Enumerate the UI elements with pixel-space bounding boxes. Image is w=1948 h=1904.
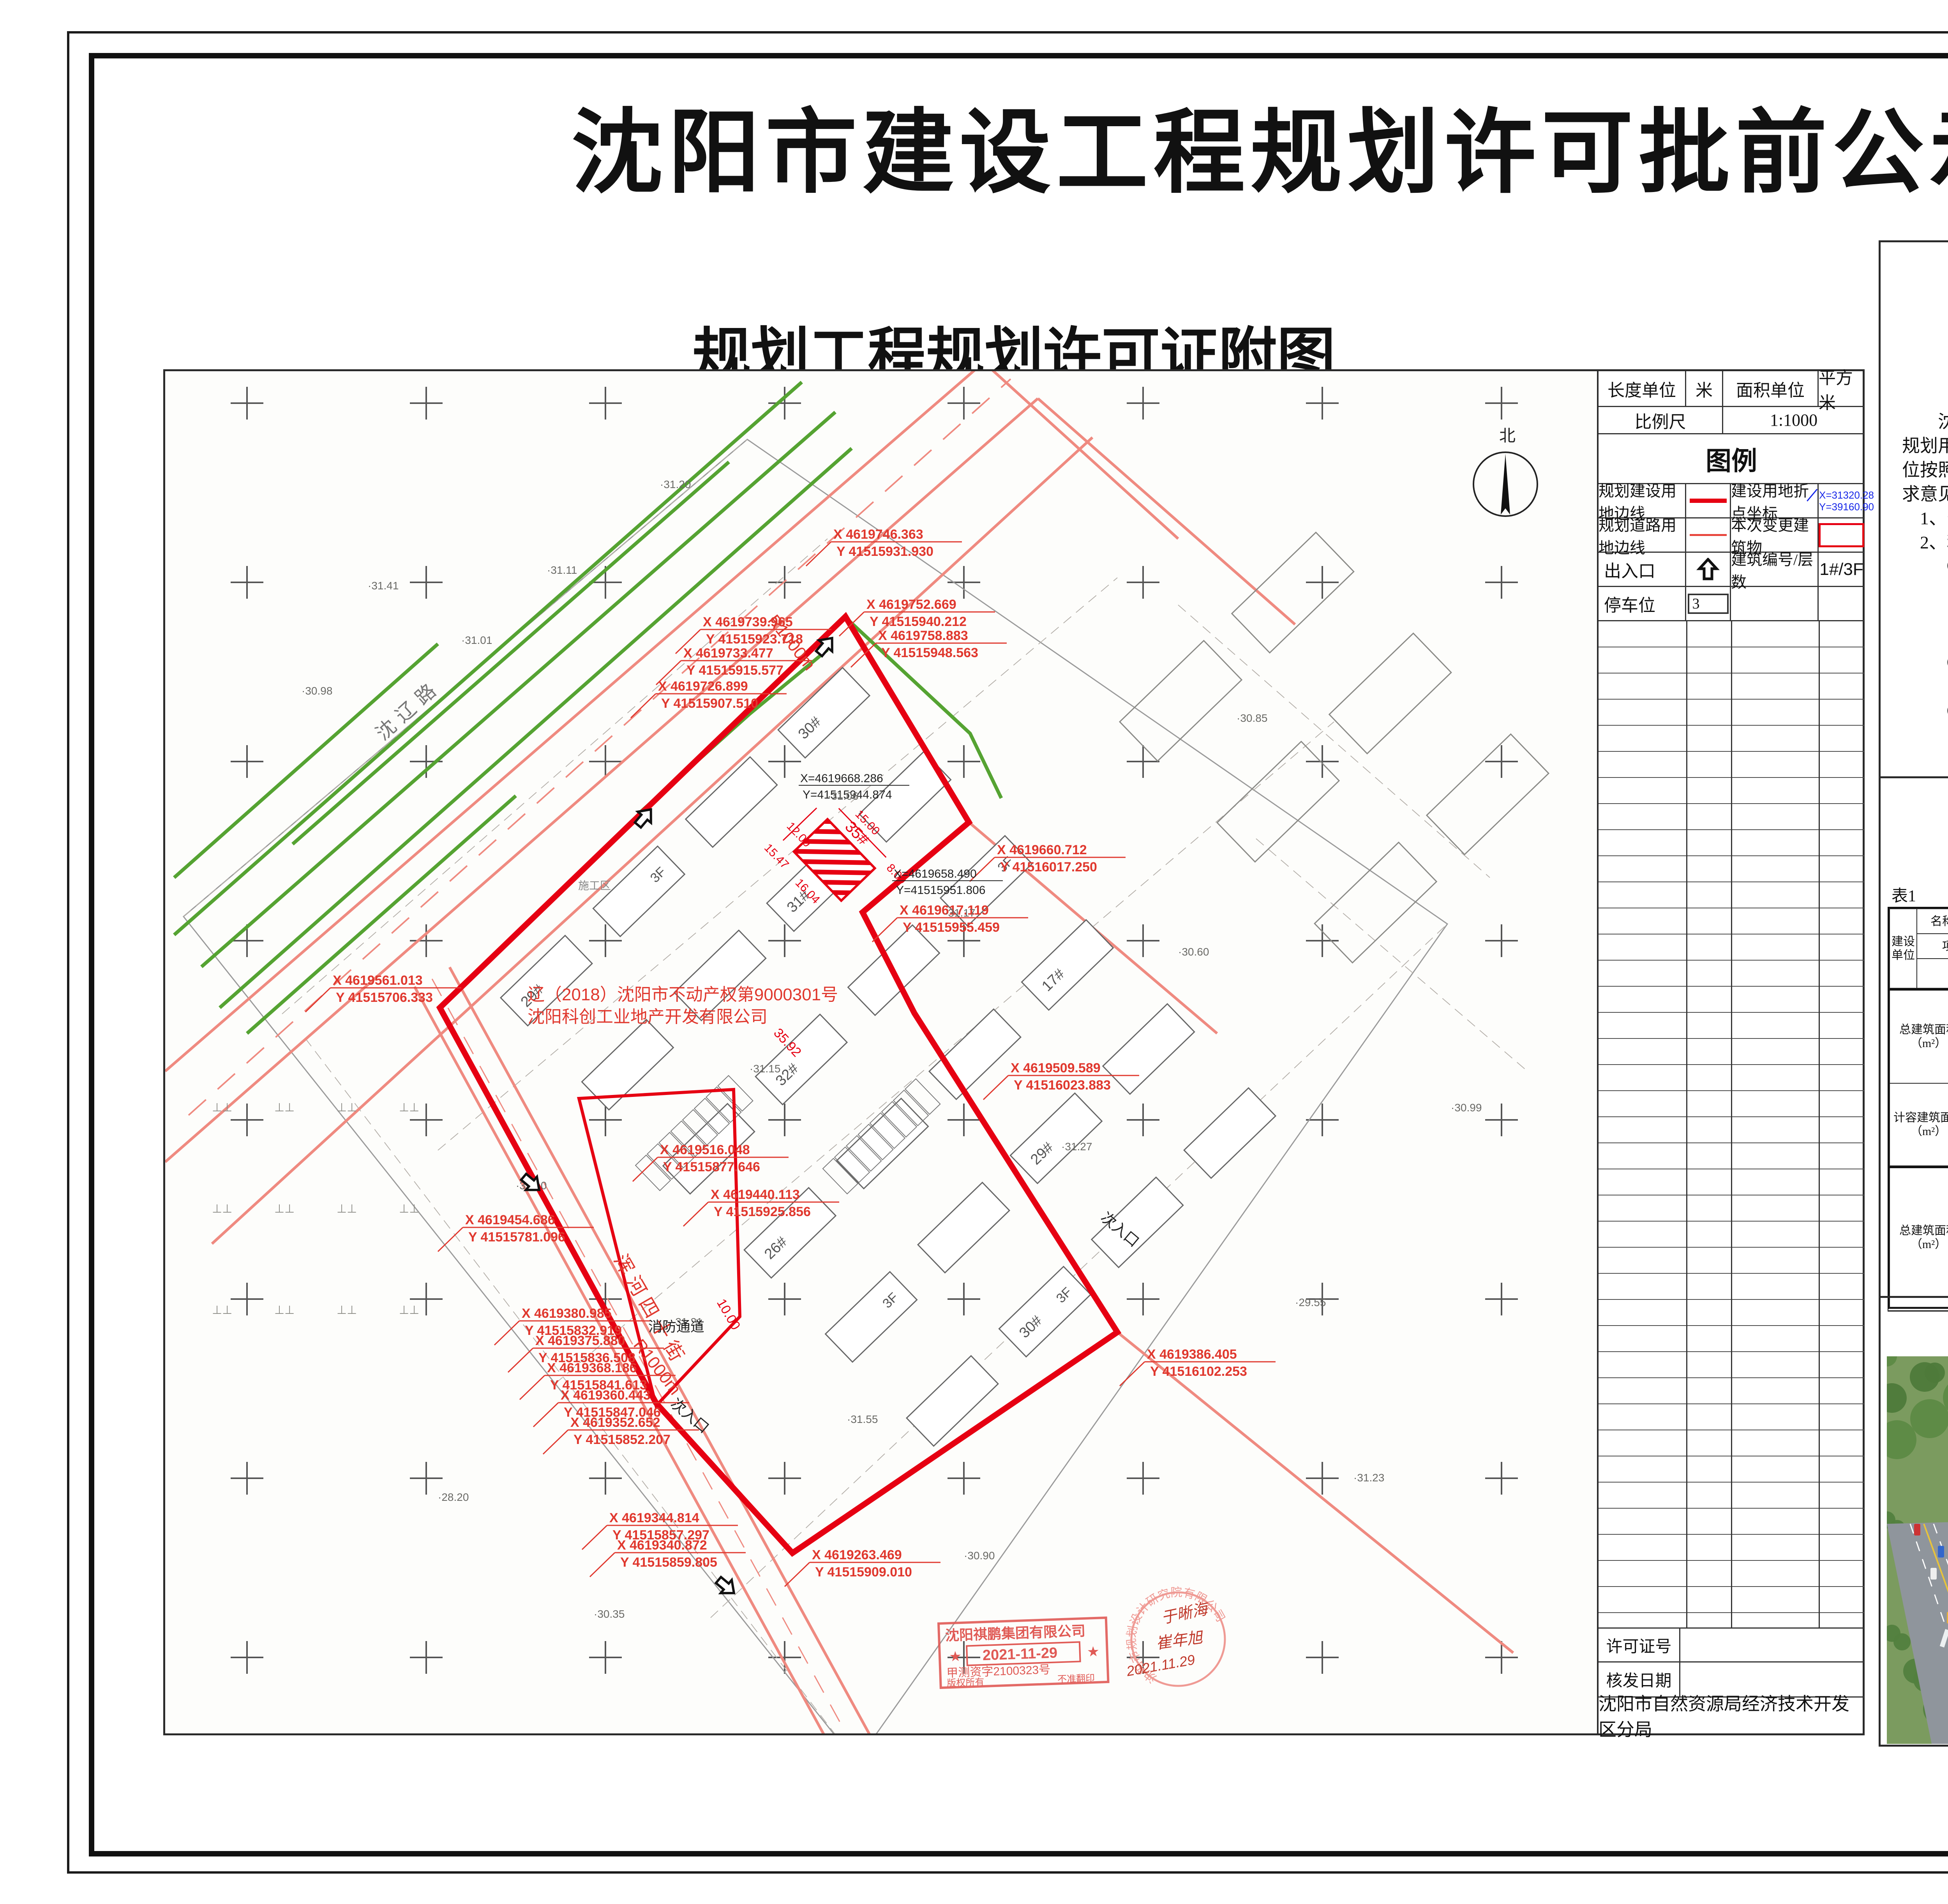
notice-line: ②信函请邮寄至：沈阳经济技术开发区中央大街27号开发区管委会13楼， [1902, 651, 1948, 675]
svg-text:·31.55: ·31.55 [847, 1413, 878, 1425]
svg-text:·30.60: ·30.60 [1178, 946, 1209, 958]
units-row: 长度单位 米 面积单位 平方米 [1599, 371, 1864, 407]
site-plan-map: 29#3F30#31#3F32#3F26#17#3F29#30#3F35#15.… [165, 371, 1597, 1733]
thick-red-line-symbol [1686, 484, 1731, 517]
svg-text:X 4619344.814: X 4619344.814 [609, 1511, 699, 1525]
svg-text:Y 41515877.646: Y 41515877.646 [663, 1160, 760, 1174]
svg-text:Y 41515909.010: Y 41515909.010 [815, 1565, 912, 1580]
right-info-panel: 公示信息 沈阳科创工业地产开发有限公司位于沈阳经济技术开发区沈辽西路193号 的… [1879, 240, 1948, 1747]
cell: 计容建筑面积（m²） [1890, 1083, 1948, 1166]
notice-line: 规划用地性质为工业用地，面积为85894.02平方米。建设单位现已委托设计单 [1902, 434, 1948, 458]
svg-text:⊥⊥: ⊥⊥ [399, 1101, 419, 1114]
legend-column: 长度单位 米 面积单位 平方米 比例尺 1:1000 图例 规划建设用地边线 建… [1597, 371, 1863, 1733]
svg-text:Y 41515925.856: Y 41515925.856 [714, 1204, 811, 1219]
scale-value: 1:1000 [1723, 407, 1864, 433]
indicator-table-part2: 总建筑面积（m²） 88641.94（本次540.00） 地上（m²） 8824… [1889, 989, 1948, 1166]
svg-text:★: ★ [1087, 1643, 1100, 1660]
notice-line: 位按照相关技术标准和规范完成建设工程规划设计方案，现予以公示并公开征 [1902, 458, 1948, 482]
legend-vline-3 [1819, 621, 1820, 1627]
svg-text:⊥⊥: ⊥⊥ [399, 1202, 419, 1215]
svg-text:X 4619368.186: X 4619368.186 [547, 1361, 637, 1375]
cell: 总建筑面积（m²） [1890, 990, 1948, 1083]
notice-line: 024-81978559； [1902, 579, 1948, 603]
notice-line: 沈阳市自然资源局经济技术开发区分局 [1902, 724, 1948, 748]
svg-text:X 4619440.113: X 4619440.113 [711, 1187, 800, 1202]
indicator-table: 建设单位 名称（公章） 沈阳科创工业地产开发有限公司 设计单位 名称（公章） 辽… [1888, 907, 1948, 1312]
svg-text:X 4619380.985: X 4619380.985 [522, 1306, 612, 1321]
svg-text:X 4619726.899: X 4619726.899 [658, 679, 748, 694]
birdseye-section: 鸟瞰图 35#楼 [1881, 1296, 1948, 1749]
cell: 项目地址 [1917, 934, 1948, 959]
legend-empty-symbol [1819, 587, 1864, 620]
legend-header: 图例 [1599, 434, 1864, 483]
notice-header: 公示信息 [1881, 254, 1948, 321]
length-unit-label: 长度单位 [1599, 371, 1686, 406]
legend-vline-1 [1686, 621, 1687, 1627]
notice-line: 求意见。 [1902, 482, 1948, 506]
svg-text:X 4619516.048: X 4619516.048 [660, 1142, 750, 1157]
svg-text:X 4619360.443: X 4619360.443 [561, 1388, 651, 1403]
permit-no-label: 许可证号 [1599, 1629, 1680, 1661]
scale-row: 比例尺 1:1000 [1599, 407, 1864, 434]
parking-symbol: 3 [1686, 587, 1731, 620]
notice-line: 2022年07月20日 [1902, 748, 1948, 772]
svg-text:·30.99: ·30.99 [1451, 1102, 1482, 1114]
svg-text:X 4619375.880: X 4619375.880 [535, 1333, 625, 1348]
svg-text:⊥⊥: ⊥⊥ [274, 1101, 295, 1114]
notice-subtitle-1: 沈阳科创工业地产开发有限公司位于沈阳经济技术开发区沈辽西路193号 [1896, 326, 1948, 350]
notice-line: ③电子邮箱：gh25375039@163.com。 [1902, 700, 1948, 724]
svg-text:X 4619660.712: X 4619660.712 [997, 843, 1087, 857]
svg-text:Y 41515859.805: Y 41515859.805 [620, 1555, 717, 1570]
legend-row-4: 停车位 3 [1599, 587, 1864, 621]
svg-text:Y 41515948.563: Y 41515948.563 [881, 645, 978, 660]
notice-line: ①咨询电话：审批部门：沈阳市自然资源局经济技术开发区分局， [1902, 555, 1948, 579]
page-title: 沈阳市建设工程规划许可批前公示板 [0, 78, 1948, 211]
svg-text:⊥⊥: ⊥⊥ [212, 1202, 232, 1215]
svg-text:X 4619758.883: X 4619758.883 [878, 628, 968, 643]
svg-text:·30.35: ·30.35 [594, 1608, 625, 1620]
svg-text:Y=41515951.806: Y=41515951.806 [896, 884, 985, 897]
svg-text:·31.41: ·31.41 [368, 580, 399, 592]
notice-line: 建设单位：沈阳科创工业地产开发有限公司，024-31011333； [1902, 603, 1948, 627]
notice-line: 1、公示及收集意见日期：2022年07月20日——2022年07月28日（7个工… [1902, 506, 1948, 531]
svg-text:X=4619668.286: X=4619668.286 [800, 772, 883, 785]
svg-text:Y 41515955.459: Y 41515955.459 [903, 920, 1000, 935]
svg-text:沈阳科创工业地产开发有限公司: 沈阳科创工业地产开发有限公司 [528, 1007, 768, 1026]
cell: 联系人 [1917, 959, 1948, 988]
legend-vline-2 [1731, 621, 1732, 1627]
legend-empty-label [1731, 587, 1819, 620]
legend-label-road-boundary: 规划道路用地边线 [1599, 518, 1686, 552]
svg-text:辽（2018）沈阳市不动产权第9000301号: 辽（2018）沈阳市不动产权第9000301号 [528, 985, 838, 1004]
indicator-section: 建设项目经济技术指标统计表 表1 填表日期： 2022 年 07 月 19 日 … [1881, 776, 1948, 1296]
issuing-agency: 沈阳市自然资源局经济技术开发区分局 [1599, 1698, 1864, 1733]
svg-text:⊥⊥: ⊥⊥ [212, 1101, 232, 1114]
length-unit-value: 米 [1686, 371, 1723, 406]
permit-no-row: 许可证号 [1599, 1627, 1864, 1662]
svg-text:施工区: 施工区 [578, 880, 611, 892]
svg-text:北: 北 [1499, 427, 1516, 445]
svg-text:Y 41515931.930: Y 41515931.930 [836, 544, 933, 559]
thin-red-line-symbol [1686, 518, 1731, 552]
svg-text:·28.20: ·28.20 [438, 1491, 469, 1503]
svg-text:·31.23: ·31.23 [1353, 1472, 1384, 1484]
area-unit-value: 平方米 [1819, 371, 1864, 406]
svg-text:Y 41516023.883: Y 41516023.883 [1014, 1078, 1111, 1093]
svg-text:X 4619340.872: X 4619340.872 [617, 1538, 707, 1553]
svg-text:Y 41516102.253: Y 41516102.253 [1150, 1364, 1247, 1379]
notice-body: 沈阳科创工业地产开发有限公司位于沈阳经济技术开发区沈辽西路193号，规划用地性质… [1902, 410, 1948, 772]
table-meta-row: 表1 填表日期： 2022 年 07 月 19 日 [1892, 883, 1948, 906]
svg-text:⊥⊥: ⊥⊥ [337, 1304, 357, 1317]
svg-text:X 4619352.652: X 4619352.652 [570, 1415, 660, 1430]
cell: 总建筑面积（m²） [1890, 1167, 1948, 1307]
svg-text:Y 41515907.510: Y 41515907.510 [661, 696, 758, 711]
svg-text:版权所有: 版权所有 [947, 1677, 985, 1689]
svg-text:Y 41515781.096: Y 41515781.096 [468, 1230, 565, 1245]
legend-label-parking: 停车位 [1599, 587, 1686, 620]
svg-text:·31.20: ·31.20 [660, 478, 691, 490]
sample-y: Y=39160.90 [1819, 501, 1874, 513]
svg-text:·31.06: ·31.06 [828, 790, 858, 802]
svg-text:·30.85: ·30.85 [1237, 712, 1267, 724]
svg-text:X 4619454.686: X 4619454.686 [465, 1213, 555, 1227]
svg-text:·31.17: ·31.17 [944, 907, 975, 919]
red-outline-rect-symbol [1819, 518, 1864, 552]
legend-label-building-no: 建筑编号/层数 [1731, 553, 1819, 586]
blue-coordinate-symbol: X=31320.28Y=39160.90 [1819, 484, 1864, 517]
notice-section: 公示信息 沈阳科创工业地产开发有限公司位于沈阳经济技术开发区沈辽西路193号 的… [1881, 242, 1948, 776]
notice-line: 沈阳科创工业地产开发有限公司位于沈阳经济技术开发区沈辽西路193号， [1902, 410, 1948, 434]
notice-line: 2、利害关系人可在公示有效期内通过以下途径咨询或提出意见： [1902, 531, 1948, 555]
permit-no-value [1680, 1629, 1864, 1661]
svg-text:2021-11-29: 2021-11-29 [982, 1645, 1058, 1664]
indicator-table-part3: 总建筑面积（m²） 地上建筑面积（m²） 88241.87（本次540.00） … [1889, 1166, 1948, 1308]
svg-text:·31.01: ·31.01 [461, 634, 492, 646]
svg-text:⊥⊥: ⊥⊥ [337, 1101, 357, 1114]
legend-header-row: 图例 [1599, 434, 1864, 484]
svg-text:Y 41515915.577: Y 41515915.577 [686, 663, 783, 678]
birdseye-title: 鸟瞰图 [1881, 1305, 1948, 1361]
svg-text:Y 41515706.333: Y 41515706.333 [336, 990, 433, 1005]
svg-text:⊥⊥: ⊥⊥ [337, 1202, 357, 1215]
svg-text:Y 41516017.250: Y 41516017.250 [1000, 860, 1097, 874]
svg-text:X 4619733.477: X 4619733.477 [683, 646, 773, 661]
svg-text:·31.15: ·31.15 [750, 1063, 780, 1075]
svg-text:·31.11: ·31.11 [547, 564, 577, 576]
svg-text:X 4619386.405: X 4619386.405 [1147, 1347, 1237, 1362]
notice-line: 设计单位：辽宁大建筑设计有限公司，024-31356535； [1902, 627, 1948, 651]
area-unit-label: 面积单位 [1723, 371, 1819, 406]
svg-text:⊥⊥: ⊥⊥ [212, 1304, 232, 1317]
svg-text:X=4619658.490: X=4619658.490 [894, 867, 977, 880]
cell: 名称（公章） [1917, 909, 1948, 934]
agency-row: 沈阳市自然资源局经济技术开发区分局 [1599, 1698, 1864, 1733]
svg-text:X 4619561.013: X 4619561.013 [333, 973, 423, 988]
svg-text:X 4619746.363: X 4619746.363 [833, 527, 923, 542]
map-panel: 29#3F30#31#3F32#3F26#17#3F29#30#3F35#15.… [163, 369, 1865, 1735]
svg-text:不准翻印: 不准翻印 [1057, 1673, 1095, 1685]
svg-text:消防通道: 消防通道 [648, 1319, 704, 1335]
legend-row-3: 出入口 建筑编号/层数 1#/3F [1599, 553, 1864, 587]
indicator-table-title: 建设项目经济技术指标统计表 [1881, 807, 1948, 856]
scale-label: 比例尺 [1599, 407, 1723, 433]
svg-text:·30.98: ·30.98 [302, 685, 332, 697]
svg-text:⊥⊥: ⊥⊥ [274, 1304, 295, 1317]
building-no-sample: 1#/3F [1819, 553, 1864, 586]
parking-sample-number: 3 [1688, 594, 1729, 614]
svg-text:⊥⊥: ⊥⊥ [274, 1202, 295, 1215]
legend-label-entrance: 出入口 [1599, 553, 1686, 586]
svg-text:X 4619752.669: X 4619752.669 [866, 597, 956, 612]
notice-subtitle-2: 的工业项目规划设计方案批前公示 [1896, 350, 1948, 374]
svg-text:X 4619263.469: X 4619263.469 [812, 1548, 902, 1562]
svg-text:X 4619509.589: X 4619509.589 [1011, 1061, 1101, 1075]
table-number: 表1 [1892, 887, 1916, 905]
entrance-arrow-icon [1686, 553, 1731, 586]
notice-line: 中德园规划建设管理部（规划）收。 [1902, 675, 1948, 700]
indicator-table-part1: 建设单位 名称（公章） 沈阳科创工业地产开发有限公司 设计单位 名称（公章） 辽… [1889, 908, 1948, 989]
svg-text:Y 41515940.212: Y 41515940.212 [870, 614, 967, 629]
svg-text:·30.90: ·30.90 [964, 1550, 995, 1562]
svg-text:·29.55: ·29.55 [1295, 1296, 1326, 1308]
svg-text:·31.27: ·31.27 [1061, 1141, 1092, 1153]
cell: 建设单位 [1890, 909, 1917, 988]
birdseye-rendering: 35#楼 [1887, 1356, 1948, 1744]
svg-text:★: ★ [949, 1648, 962, 1664]
svg-text:Y 41515852.207: Y 41515852.207 [573, 1432, 671, 1447]
svg-text:⊥⊥: ⊥⊥ [399, 1304, 419, 1317]
birdseye-svg: 35#楼 [1887, 1356, 1948, 1744]
